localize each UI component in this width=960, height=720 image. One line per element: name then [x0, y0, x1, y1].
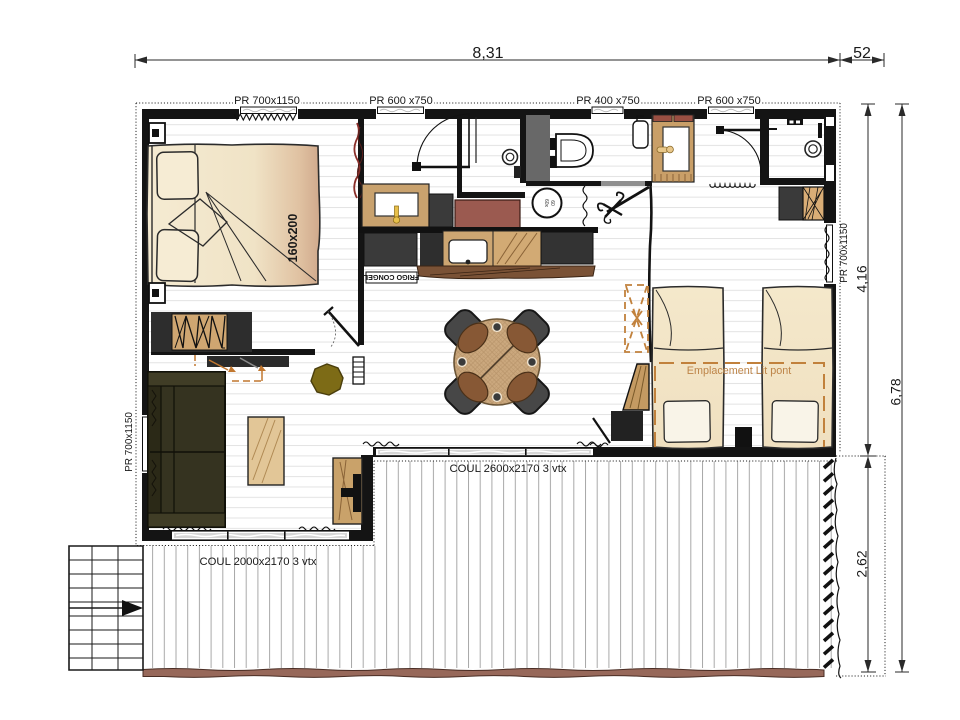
svg-text:52: 52 [853, 45, 871, 62]
svg-text:6,78: 6,78 [888, 378, 904, 405]
svg-text:PR 700x1150: PR 700x1150 [234, 95, 300, 107]
svg-text:PR 600 x750: PR 600 x750 [369, 95, 433, 107]
svg-text:PR 600 x750: PR 600 x750 [697, 95, 761, 107]
svg-text:160x200: 160x200 [286, 214, 300, 263]
svg-text:PR 700x1150: PR 700x1150 [839, 223, 850, 283]
svg-text:PR 400 x750: PR 400 x750 [576, 95, 640, 107]
svg-text:COUL 2600x2170 3 vtx: COUL 2600x2170 3 vtx [449, 463, 566, 475]
svg-text:COUL 2000x2170 3 vtx: COUL 2000x2170 3 vtx [199, 556, 316, 568]
svg-text:60x: 60x [543, 199, 549, 208]
svg-text:Emplacement Lit pont: Emplacement Lit pont [687, 365, 791, 377]
svg-text:2,62: 2,62 [854, 550, 870, 577]
svg-text:8,31: 8,31 [472, 45, 503, 62]
svg-text:4,16: 4,16 [854, 265, 870, 292]
svg-text:FRIGO CONGEL: FRIGO CONGEL [363, 273, 419, 282]
svg-text:PR 700x1150: PR 700x1150 [124, 412, 135, 472]
svg-text:60: 60 [549, 200, 555, 206]
